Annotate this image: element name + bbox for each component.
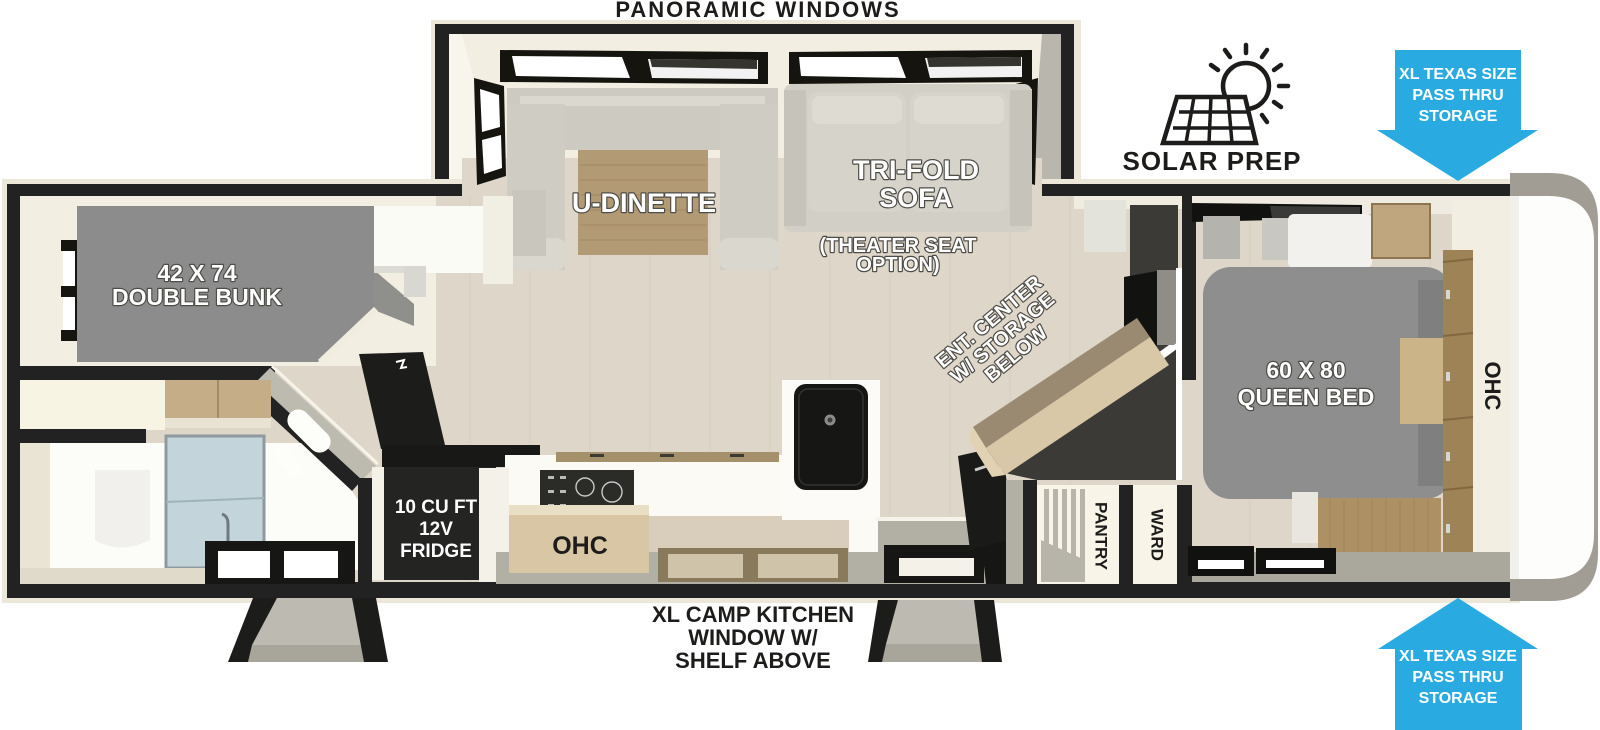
svg-text:WINDOW W/: WINDOW W/ [688,625,818,650]
svg-text:PANORAMIC WINDOWS: PANORAMIC WINDOWS [615,0,900,22]
svg-text:QUEEN BED: QUEEN BED [1238,384,1375,410]
svg-text:WARD: WARD [1148,509,1167,561]
svg-text:12V: 12V [419,519,453,540]
svg-text:10 CU FT: 10 CU FT [395,497,478,518]
svg-text:OPTION): OPTION) [856,254,939,276]
svg-text:SOFA: SOFA [879,183,953,213]
svg-text:FRIDGE: FRIDGE [400,541,472,562]
svg-text:XL CAMP KITCHEN: XL CAMP KITCHEN [652,602,854,627]
svg-text:DOUBLE BUNK: DOUBLE BUNK [112,284,282,310]
svg-text:STORAGE: STORAGE [1419,108,1498,125]
svg-text:SHELF ABOVE: SHELF ABOVE [675,648,831,673]
svg-text:PASS THRU: PASS THRU [1412,669,1503,686]
svg-text:STORAGE: STORAGE [1419,690,1498,707]
svg-text:OHC: OHC [552,532,608,560]
svg-text:U-DINETTE: U-DINETTE [572,188,716,218]
svg-text:PANTRY: PANTRY [1092,502,1111,571]
svg-text:OHC: OHC [1480,362,1505,411]
svg-text:XL TEXAS SIZE: XL TEXAS SIZE [1399,66,1517,83]
svg-text:42 X 74: 42 X 74 [157,260,236,286]
svg-text:SOLAR PREP: SOLAR PREP [1122,146,1301,176]
svg-text:PASS THRU: PASS THRU [1412,87,1503,104]
svg-text:XL TEXAS SIZE: XL TEXAS SIZE [1399,648,1517,665]
svg-text:60 X 80: 60 X 80 [1266,357,1345,383]
svg-text:TRI-FOLD: TRI-FOLD [853,155,979,185]
